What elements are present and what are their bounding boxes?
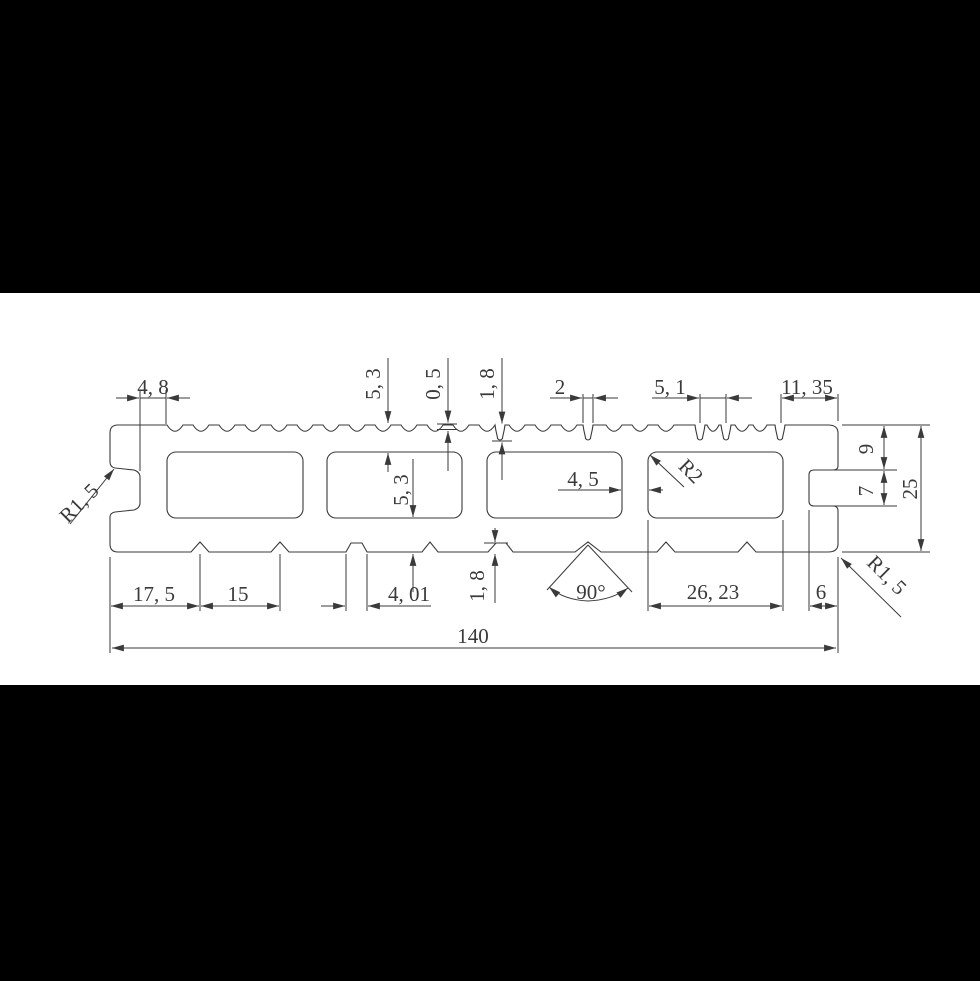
- dim-label-1-8-bottom: 1, 8: [465, 570, 489, 602]
- dim-label-7: 7: [854, 486, 878, 497]
- dim-label-5-1: 5, 1: [654, 375, 686, 399]
- letterbox-bottom: [0, 685, 980, 981]
- dim-label-2: 2: [555, 375, 566, 399]
- dim-label-4-01: 4, 01: [388, 582, 430, 606]
- dim-label-6: 6: [816, 580, 827, 604]
- dim-label-4-8: 4, 8: [137, 375, 169, 399]
- dim-label-26-23: 26, 23: [687, 580, 740, 604]
- dim-label-9: 9: [854, 444, 878, 455]
- dim-label-5-3-top: 5, 3: [361, 368, 385, 400]
- dim-label-11-35: 11, 35: [781, 375, 833, 399]
- letterbox-top: [0, 0, 980, 293]
- dim-label-25: 25: [898, 479, 922, 500]
- technical-drawing-canvas: 4, 8 5, 3 0, 5 1, 8 2 5, 1: [0, 0, 980, 981]
- dim-label-0-5: 0, 5: [421, 368, 445, 400]
- dim-label-1-8-top: 1, 8: [475, 368, 499, 400]
- dim-label-17-5: 17, 5: [133, 582, 175, 606]
- screenshot-stage: 4, 8 5, 3 0, 5 1, 8 2 5, 1: [0, 0, 980, 981]
- drawing-paper: [0, 293, 980, 685]
- dim-label-15: 15: [228, 582, 249, 606]
- dim-label-4-5: 4, 5: [567, 467, 599, 491]
- dim-label-5-3-mid: 5, 3: [389, 474, 413, 506]
- dim-label-140: 140: [457, 624, 489, 648]
- dim-label-90: 90°: [576, 580, 605, 604]
